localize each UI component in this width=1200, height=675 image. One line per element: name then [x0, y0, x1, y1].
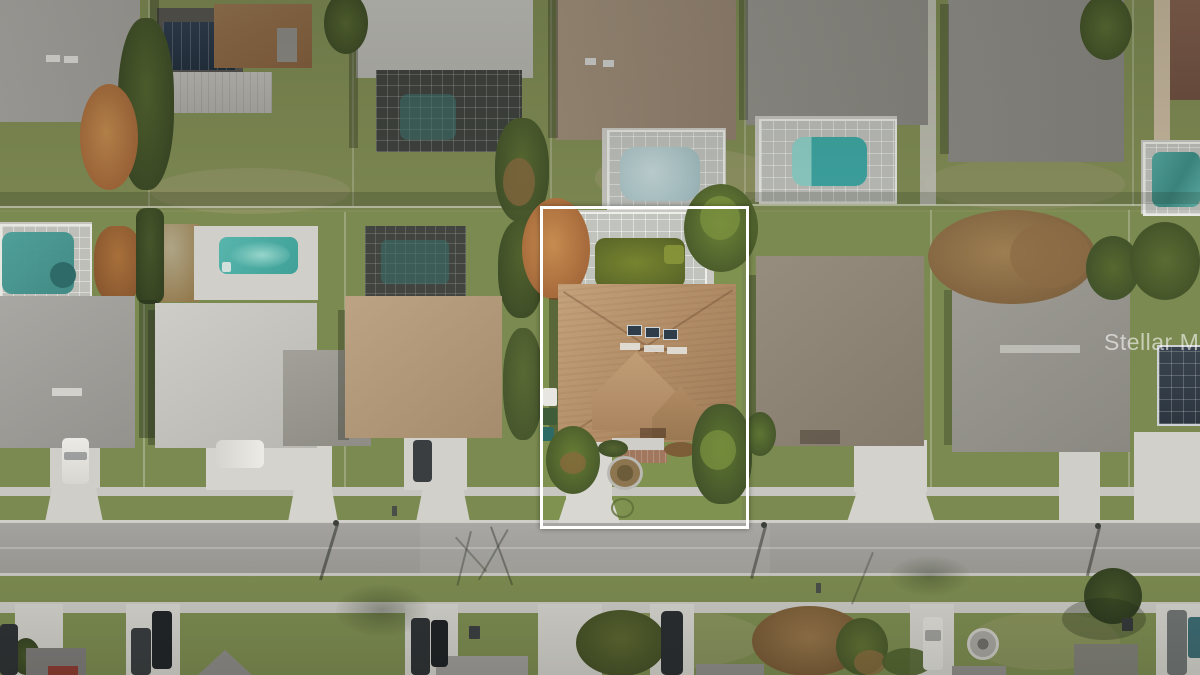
lot2-pool-swirl [228, 241, 290, 269]
lot3-apron [416, 490, 470, 522]
east-driveway [854, 440, 927, 492]
top-shade-overlay [0, 0, 1200, 210]
farright-driveway [1134, 432, 1200, 522]
lot2-pool-ladder [222, 262, 231, 272]
stellar-mls-watermark: Stellar MLS [1104, 329, 1200, 356]
streetlight-1 [333, 520, 339, 526]
farleft-spa [50, 262, 76, 288]
streetlight-3 [1095, 523, 1101, 529]
east-apron [847, 490, 935, 522]
white-van-lot1-windshield [64, 452, 87, 460]
bottom-shade-overlay [0, 575, 1200, 675]
bush-cluster-2 [503, 328, 543, 440]
dark-van-lot3 [413, 440, 432, 482]
white-van-lot1 [62, 438, 89, 484]
lot3-house-roof [345, 296, 502, 438]
lot1-apron [45, 488, 103, 522]
white-van-lot2 [216, 440, 264, 468]
lot3-lanai-pool-glint [381, 240, 449, 284]
lot2-apron [288, 490, 338, 522]
tree-right-edge [1130, 222, 1200, 300]
lot1-roof-vents [52, 388, 82, 396]
ee-ridge-cap [1000, 345, 1080, 353]
farright-solar-screen [1157, 345, 1200, 426]
east-entry-shadow [800, 430, 840, 444]
mailbox-1 [392, 506, 397, 516]
brown-canopy-2 [1010, 222, 1090, 288]
streetlight-2 [761, 522, 767, 528]
street-sunlit-patch [420, 523, 770, 575]
rust-shrub-row [94, 226, 142, 302]
aerial-neighborhood-photo: Stellar MLS [0, 0, 1200, 675]
lot1-house-roof [0, 296, 135, 448]
east-house-roof [756, 256, 924, 446]
property-outline [540, 206, 749, 529]
hedge-tall [136, 208, 164, 304]
